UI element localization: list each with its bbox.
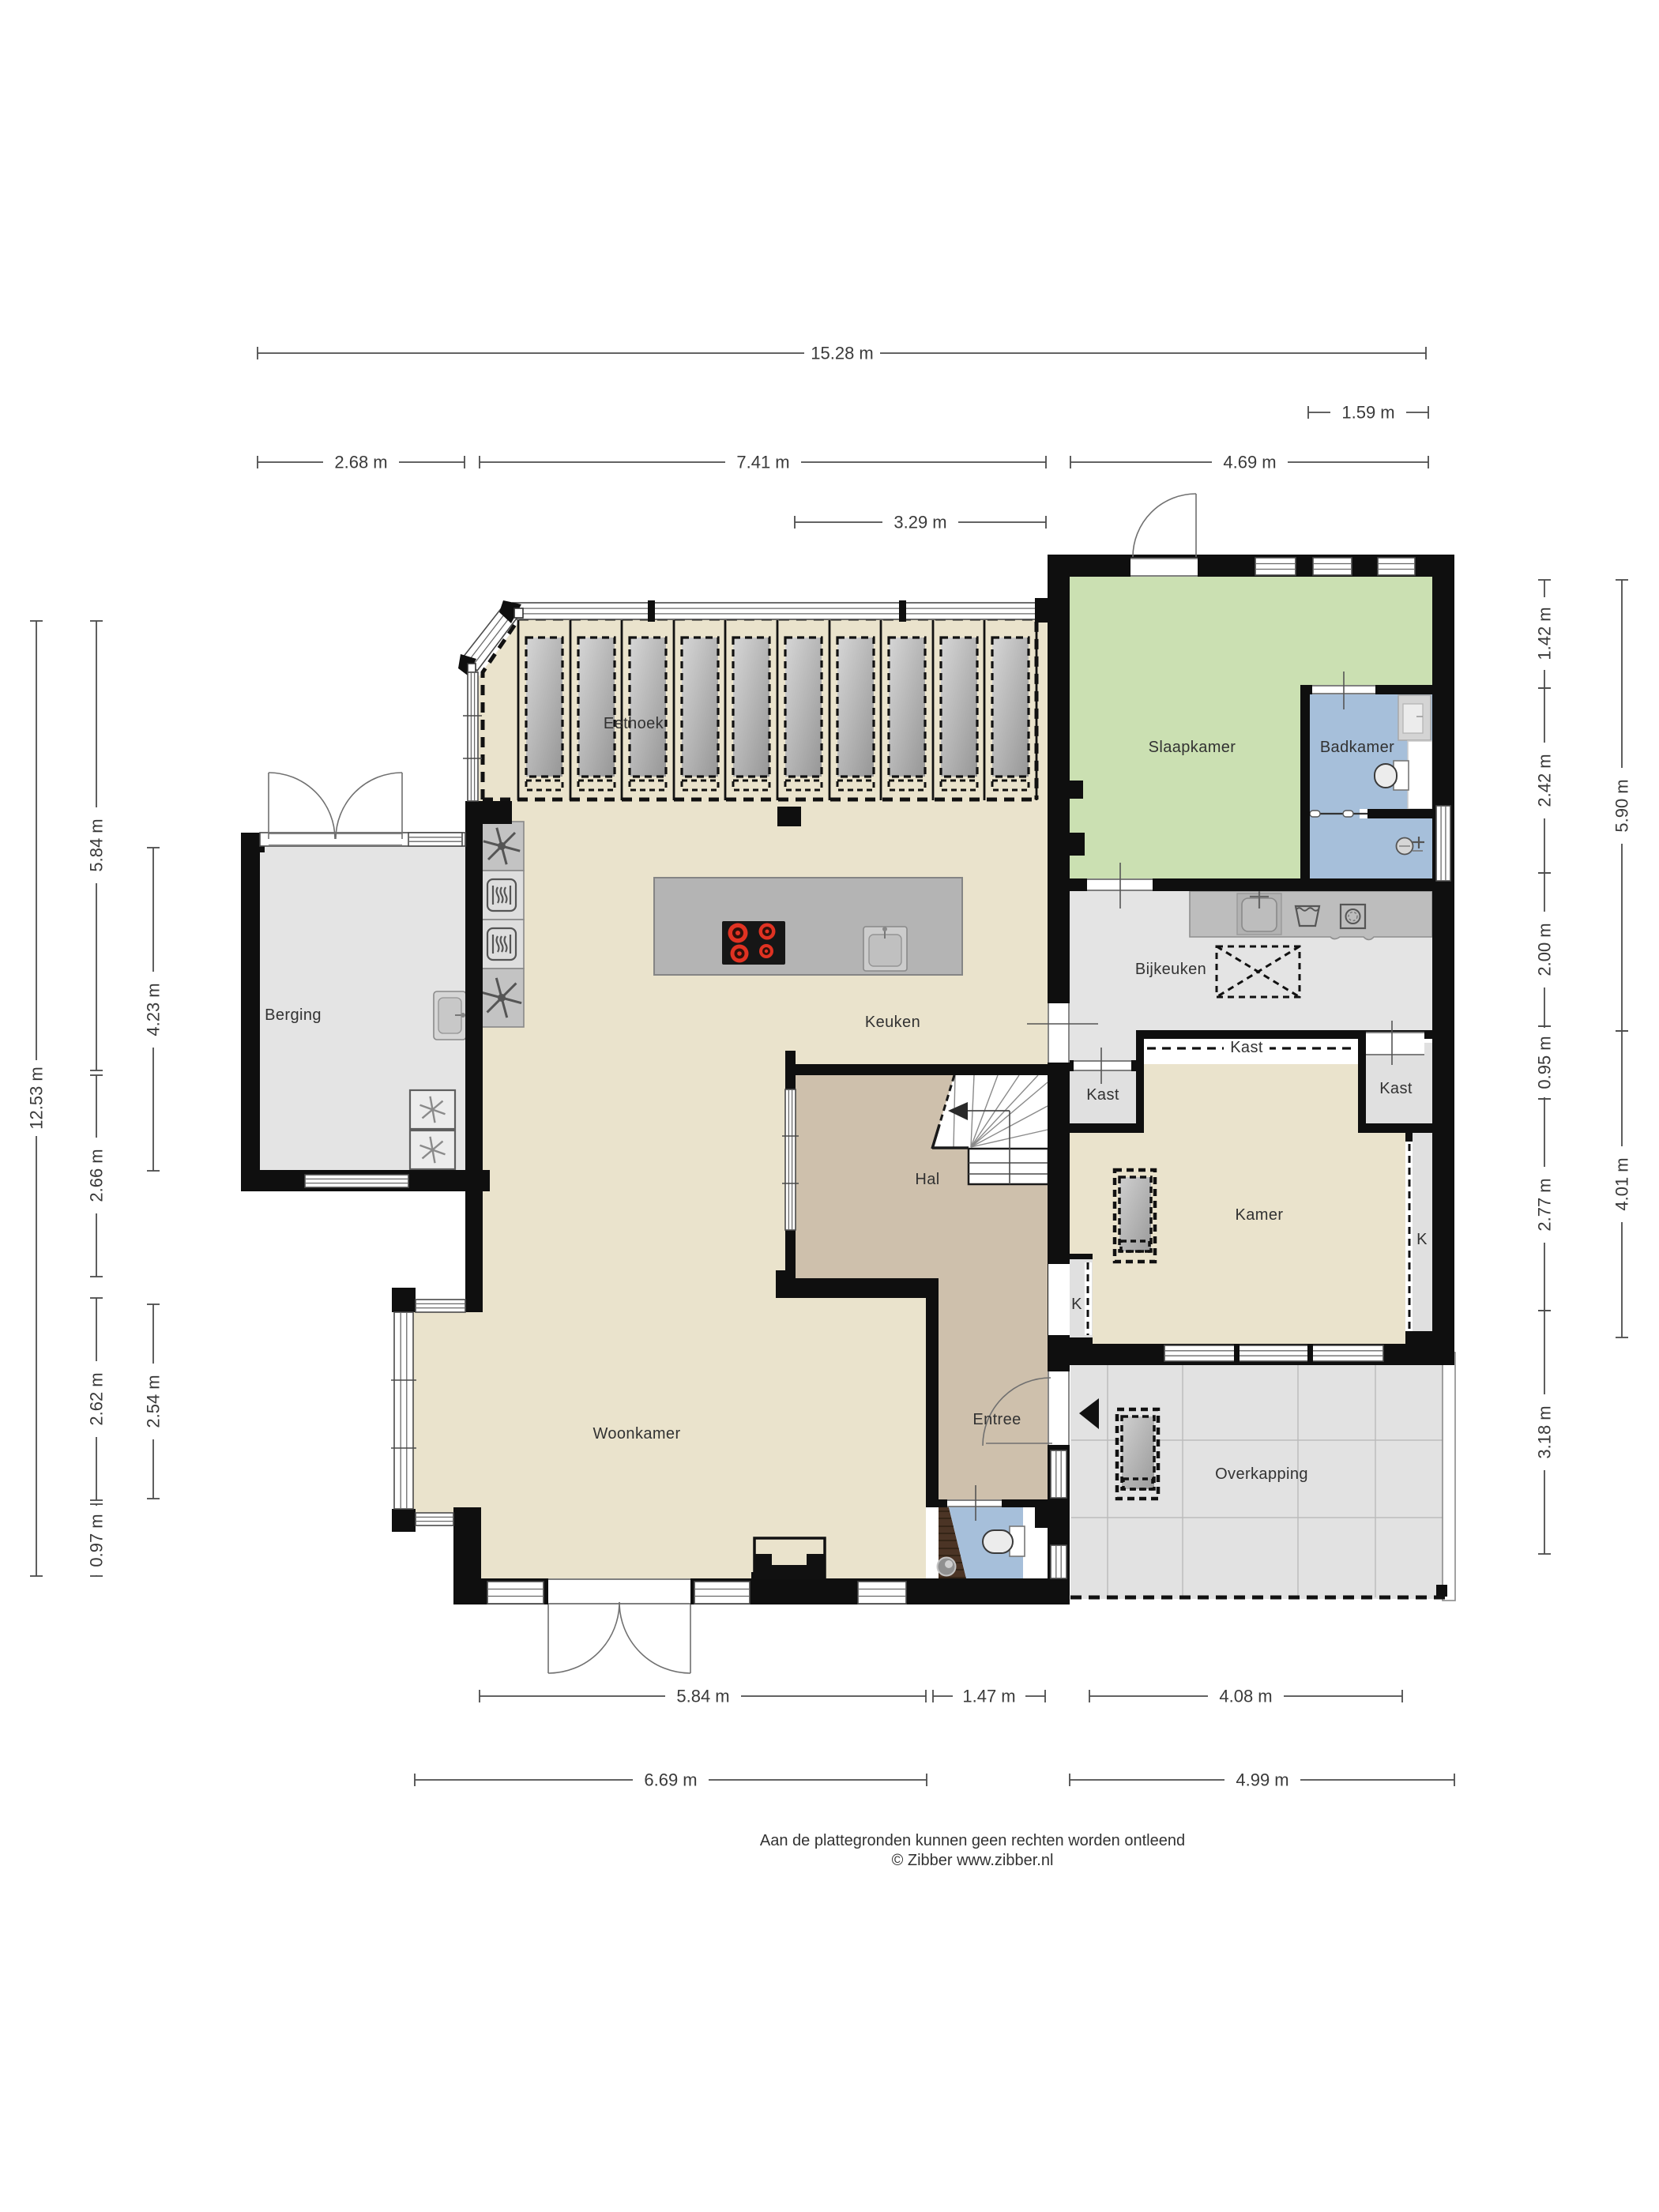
svg-text:4.69 m: 4.69 m (1223, 453, 1276, 472)
svg-text:2.68 m: 2.68 m (334, 453, 387, 472)
svg-text:Aan de plattegronden kunnen ge: Aan de plattegronden kunnen geen rechten… (760, 1832, 1185, 1849)
svg-text:0.97 m: 0.97 m (87, 1514, 107, 1567)
svg-text:Kast: Kast (1379, 1080, 1413, 1097)
svg-text:2.00 m: 2.00 m (1535, 923, 1555, 976)
svg-text:2.42 m: 2.42 m (1535, 754, 1555, 807)
svg-text:1.59 m: 1.59 m (1341, 403, 1394, 423)
svg-text:2.54 m: 2.54 m (144, 1375, 164, 1428)
svg-text:5.84 m: 5.84 m (87, 818, 107, 871)
svg-text:5.84 m: 5.84 m (676, 1687, 729, 1706)
svg-text:4.99 m: 4.99 m (1236, 1770, 1288, 1790)
svg-text:Kast: Kast (1230, 1039, 1263, 1056)
svg-text:5.90 m: 5.90 m (1612, 779, 1632, 832)
svg-text:1.47 m: 1.47 m (962, 1687, 1015, 1706)
svg-text:2.62 m: 2.62 m (87, 1372, 107, 1425)
svg-text:Slaapkamer: Slaapkamer (1149, 739, 1236, 756)
svg-text:4.23 m: 4.23 m (144, 983, 164, 1036)
svg-text:Bijkeuken: Bijkeuken (1135, 961, 1206, 978)
svg-text:Entree: Entree (972, 1411, 1021, 1428)
svg-text:2.77 m: 2.77 m (1535, 1178, 1555, 1231)
svg-text:Hal: Hal (915, 1171, 939, 1188)
svg-text:Woonkamer: Woonkamer (592, 1425, 680, 1443)
svg-text:K: K (1416, 1231, 1428, 1248)
svg-text:Berging: Berging (265, 1006, 322, 1024)
svg-text:3.29 m: 3.29 m (893, 513, 946, 532)
svg-text:Badkamer: Badkamer (1320, 739, 1394, 756)
svg-text:Kamer: Kamer (1236, 1206, 1284, 1224)
svg-text:K: K (1071, 1296, 1082, 1313)
svg-text:3.18 m: 3.18 m (1535, 1405, 1555, 1458)
svg-text:4.01 m: 4.01 m (1612, 1157, 1632, 1210)
svg-text:1.42 m: 1.42 m (1535, 607, 1555, 660)
svg-text:7.41 m: 7.41 m (736, 453, 789, 472)
svg-text:12.53 m: 12.53 m (27, 1066, 47, 1130)
svg-text:4.08 m: 4.08 m (1219, 1687, 1272, 1706)
svg-text:Keuken: Keuken (865, 1014, 920, 1031)
svg-text:2.66 m: 2.66 m (87, 1149, 107, 1202)
svg-text:Overkapping: Overkapping (1215, 1465, 1308, 1483)
svg-text:Eethoek: Eethoek (604, 715, 664, 732)
svg-text:0.95 m: 0.95 m (1535, 1036, 1555, 1089)
svg-text:15.28 m: 15.28 m (811, 344, 874, 363)
svg-text:6.69 m: 6.69 m (644, 1770, 697, 1790)
svg-text:Kast: Kast (1086, 1086, 1119, 1104)
svg-text:© Zibber www.zibber.nl: © Zibber www.zibber.nl (892, 1852, 1054, 1869)
